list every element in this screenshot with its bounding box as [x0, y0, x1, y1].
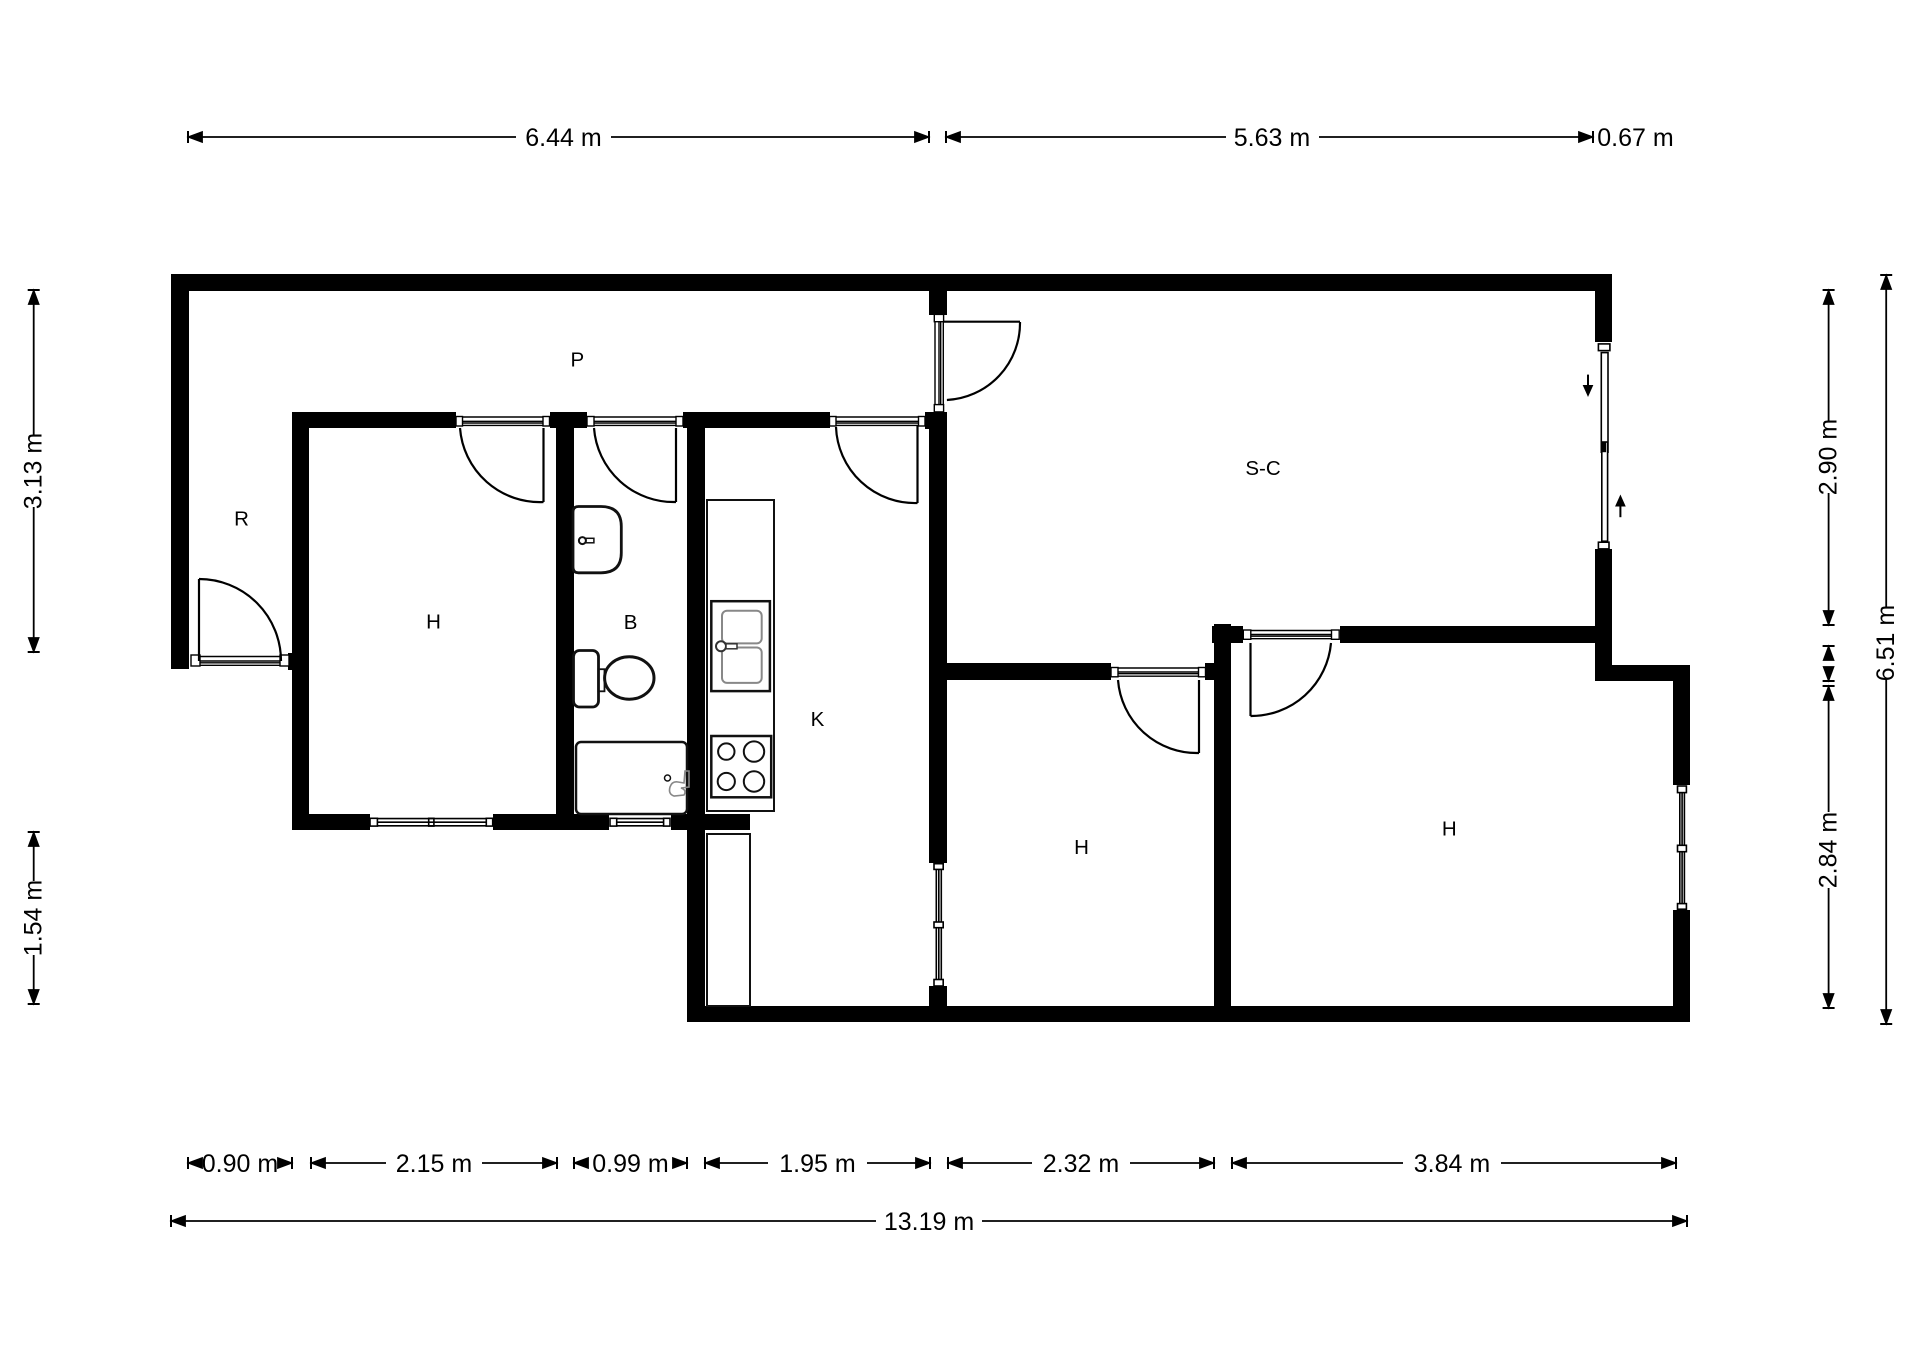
svg-text:0.99 m: 0.99 m	[592, 1150, 668, 1178]
svg-text:2.32 m: 2.32 m	[1043, 1150, 1119, 1178]
svg-text:5.63 m: 5.63 m	[1234, 124, 1310, 152]
svg-text:H: H	[1074, 836, 1089, 859]
svg-text:2.90 m: 2.90 m	[1815, 419, 1843, 495]
svg-text:H: H	[1442, 818, 1457, 841]
svg-text:K: K	[811, 708, 825, 731]
svg-text:R: R	[234, 507, 249, 530]
svg-text:B: B	[624, 611, 638, 634]
svg-text:6.44 m: 6.44 m	[525, 124, 601, 152]
svg-text:13.19 m: 13.19 m	[884, 1208, 974, 1236]
svg-text:6.51 m: 6.51 m	[1872, 605, 1900, 681]
svg-text:P: P	[571, 349, 585, 372]
svg-text:3.13 m: 3.13 m	[20, 433, 48, 509]
svg-text:0.90 m: 0.90 m	[202, 1150, 278, 1178]
svg-text:2.15 m: 2.15 m	[396, 1150, 472, 1178]
svg-text:0.67 m: 0.67 m	[1597, 124, 1673, 152]
svg-text:S-C: S-C	[1245, 457, 1281, 480]
svg-text:1.95 m: 1.95 m	[779, 1150, 855, 1178]
svg-text:3.84 m: 3.84 m	[1414, 1150, 1490, 1178]
svg-text:H: H	[426, 610, 441, 633]
svg-text:1.54 m: 1.54 m	[20, 880, 48, 956]
svg-text:2.84 m: 2.84 m	[1815, 812, 1843, 888]
